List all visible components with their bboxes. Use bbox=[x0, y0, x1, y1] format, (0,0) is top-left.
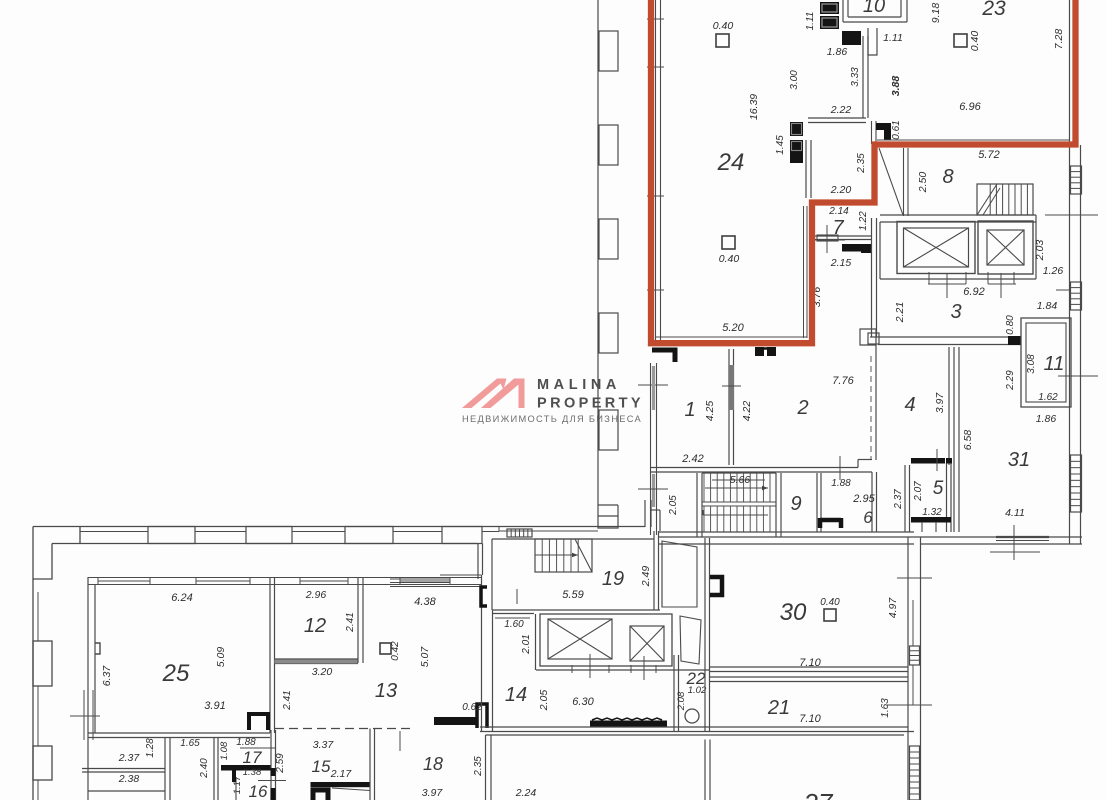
svg-text:25: 25 bbox=[162, 660, 190, 687]
svg-text:1.22: 1.22 bbox=[858, 211, 869, 231]
svg-text:2.03: 2.03 bbox=[1034, 240, 1046, 262]
svg-text:1.60: 1.60 bbox=[504, 619, 524, 630]
svg-text:2.37: 2.37 bbox=[893, 489, 904, 510]
svg-text:6.37: 6.37 bbox=[101, 665, 113, 687]
svg-text:1.63: 1.63 bbox=[880, 698, 891, 718]
svg-text:2.96: 2.96 bbox=[305, 589, 327, 601]
svg-text:15: 15 bbox=[312, 757, 331, 776]
svg-text:2.21: 2.21 bbox=[894, 302, 906, 323]
svg-text:5.09: 5.09 bbox=[215, 647, 227, 668]
svg-text:12: 12 bbox=[304, 615, 326, 637]
svg-text:2.40: 2.40 bbox=[199, 758, 210, 779]
svg-text:1.28: 1.28 bbox=[145, 738, 156, 758]
svg-text:10: 10 bbox=[863, 0, 885, 17]
svg-text:1.08: 1.08 bbox=[219, 741, 230, 760]
svg-text:2.50: 2.50 bbox=[917, 172, 929, 194]
svg-text:2.38: 2.38 bbox=[118, 773, 140, 785]
svg-text:7.10: 7.10 bbox=[799, 713, 821, 725]
svg-text:13: 13 bbox=[375, 680, 397, 702]
svg-text:НЕДВИЖИМОСТЬ ДЛЯ БИЗНЕСА: НЕДВИЖИМОСТЬ ДЛЯ БИЗНЕСА bbox=[462, 414, 642, 424]
svg-text:2.01: 2.01 bbox=[521, 634, 532, 654]
svg-text:14: 14 bbox=[505, 684, 527, 706]
svg-text:3.37: 3.37 bbox=[313, 739, 335, 751]
svg-text:0.40: 0.40 bbox=[969, 31, 981, 52]
svg-text:6.30: 6.30 bbox=[572, 696, 594, 708]
svg-text:1.86: 1.86 bbox=[1036, 413, 1057, 425]
svg-text:1.32: 1.32 bbox=[922, 507, 942, 518]
svg-text:8: 8 bbox=[942, 166, 953, 188]
svg-text:2.37: 2.37 bbox=[118, 752, 141, 764]
svg-text:1.88: 1.88 bbox=[236, 737, 256, 748]
svg-text:6.58: 6.58 bbox=[962, 430, 974, 451]
svg-text:23: 23 bbox=[981, 0, 1006, 20]
svg-text:2.35: 2.35 bbox=[856, 153, 867, 174]
svg-text:0.40: 0.40 bbox=[713, 20, 734, 32]
svg-text:6.92: 6.92 bbox=[963, 286, 984, 298]
svg-text:5: 5 bbox=[933, 478, 944, 499]
svg-text:5.72: 5.72 bbox=[978, 149, 999, 161]
svg-text:2: 2 bbox=[796, 397, 808, 419]
svg-text:3.91: 3.91 bbox=[204, 700, 225, 712]
svg-text:18: 18 bbox=[423, 754, 443, 774]
svg-text:3: 3 bbox=[950, 301, 961, 323]
svg-text:2.07: 2.07 bbox=[913, 481, 924, 502]
svg-text:3.20: 3.20 bbox=[312, 666, 333, 678]
svg-text:3.88: 3.88 bbox=[890, 76, 902, 97]
svg-text:16.39: 16.39 bbox=[748, 94, 760, 120]
svg-text:2.41: 2.41 bbox=[282, 690, 293, 710]
svg-text:16: 16 bbox=[249, 782, 268, 800]
svg-text:31: 31 bbox=[1008, 449, 1030, 471]
svg-text:1.11: 1.11 bbox=[883, 32, 903, 44]
svg-text:2.17: 2.17 bbox=[330, 768, 353, 780]
svg-text:1.02: 1.02 bbox=[688, 685, 707, 696]
svg-text:2.22: 2.22 bbox=[830, 104, 852, 116]
svg-text:9: 9 bbox=[790, 493, 801, 515]
svg-text:2.24: 2.24 bbox=[515, 787, 537, 799]
svg-text:1.65: 1.65 bbox=[180, 738, 200, 749]
svg-text:PROPERTY: PROPERTY bbox=[537, 396, 644, 412]
svg-text:19: 19 bbox=[602, 568, 624, 590]
svg-text:27: 27 bbox=[803, 788, 834, 800]
svg-text:2.05: 2.05 bbox=[668, 495, 679, 516]
svg-text:6: 6 bbox=[863, 508, 873, 527]
svg-text:MALINA: MALINA bbox=[537, 377, 621, 393]
svg-text:2.35: 2.35 bbox=[473, 756, 484, 777]
svg-text:3.97: 3.97 bbox=[422, 787, 444, 799]
svg-text:1: 1 bbox=[684, 399, 695, 421]
svg-text:6.96: 6.96 bbox=[959, 101, 981, 113]
svg-text:9.18: 9.18 bbox=[930, 3, 942, 24]
svg-text:21: 21 bbox=[767, 697, 790, 719]
svg-text:1.86: 1.86 bbox=[827, 46, 848, 58]
svg-text:0.80: 0.80 bbox=[1005, 315, 1016, 335]
svg-text:1.84: 1.84 bbox=[1037, 300, 1058, 312]
svg-text:1.38: 1.38 bbox=[243, 767, 262, 778]
svg-text:2.49: 2.49 bbox=[640, 566, 652, 588]
svg-text:2.15: 2.15 bbox=[830, 257, 852, 269]
svg-text:1.45: 1.45 bbox=[775, 135, 786, 155]
svg-text:2.20: 2.20 bbox=[830, 184, 852, 196]
svg-text:11: 11 bbox=[1044, 353, 1065, 375]
svg-text:0.42: 0.42 bbox=[390, 641, 401, 661]
svg-text:0.40: 0.40 bbox=[719, 253, 740, 265]
svg-text:6.24: 6.24 bbox=[171, 592, 192, 604]
svg-text:7.28: 7.28 bbox=[1053, 29, 1065, 50]
svg-text:3.00: 3.00 bbox=[789, 70, 800, 90]
svg-text:0.40: 0.40 bbox=[820, 597, 840, 608]
svg-text:1.88: 1.88 bbox=[831, 478, 851, 489]
svg-text:3.08: 3.08 bbox=[1026, 354, 1037, 374]
svg-text:30: 30 bbox=[780, 599, 807, 626]
svg-text:2.14: 2.14 bbox=[828, 206, 849, 217]
svg-text:1.26: 1.26 bbox=[1043, 265, 1064, 277]
svg-text:1.62: 1.62 bbox=[1038, 392, 1058, 403]
svg-text:2.41: 2.41 bbox=[345, 612, 356, 632]
svg-text:24: 24 bbox=[717, 149, 745, 176]
svg-text:0.62: 0.62 bbox=[462, 702, 482, 713]
svg-text:4.25: 4.25 bbox=[704, 401, 716, 422]
svg-text:0.61: 0.61 bbox=[891, 120, 902, 139]
svg-text:5.07: 5.07 bbox=[419, 646, 431, 668]
svg-text:4.11: 4.11 bbox=[1005, 507, 1025, 519]
svg-text:2.08: 2.08 bbox=[676, 691, 687, 711]
svg-text:2.95: 2.95 bbox=[852, 493, 875, 505]
svg-text:2.42: 2.42 bbox=[681, 453, 703, 465]
svg-text:4.38: 4.38 bbox=[414, 596, 436, 608]
svg-text:1.11: 1.11 bbox=[805, 12, 816, 31]
svg-text:3.33: 3.33 bbox=[850, 67, 861, 87]
svg-text:2.59: 2.59 bbox=[275, 753, 286, 774]
svg-text:4.22: 4.22 bbox=[741, 401, 753, 422]
svg-text:4.97: 4.97 bbox=[887, 597, 899, 619]
svg-text:17: 17 bbox=[243, 748, 262, 767]
svg-text:2.05: 2.05 bbox=[538, 690, 550, 712]
svg-text:2.29: 2.29 bbox=[1005, 370, 1016, 391]
svg-text:5.20: 5.20 bbox=[722, 322, 744, 334]
svg-text:3.97: 3.97 bbox=[934, 392, 946, 414]
svg-text:7.76: 7.76 bbox=[832, 375, 854, 387]
svg-text:4: 4 bbox=[904, 394, 915, 416]
svg-text:5.59: 5.59 bbox=[562, 589, 583, 601]
